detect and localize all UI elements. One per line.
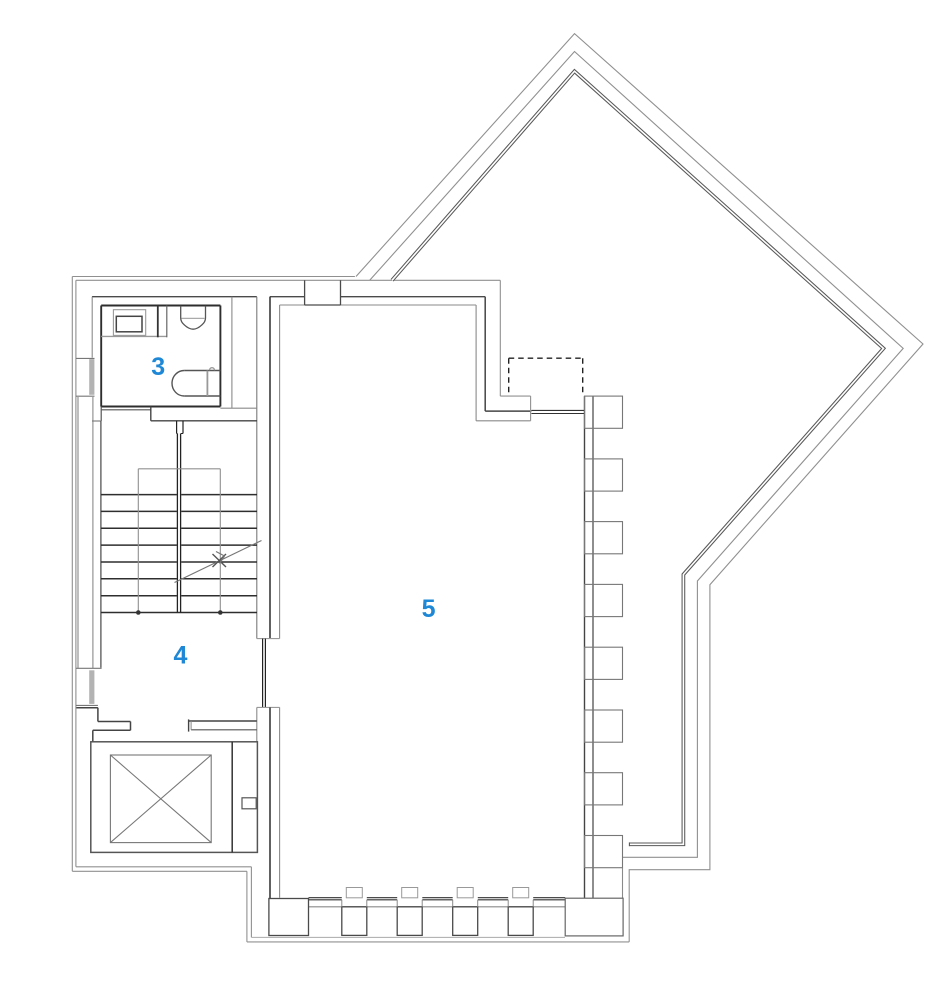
svg-text:5: 5 xyxy=(422,595,436,623)
svg-text:4: 4 xyxy=(173,642,187,670)
svg-text:3: 3 xyxy=(151,353,165,381)
